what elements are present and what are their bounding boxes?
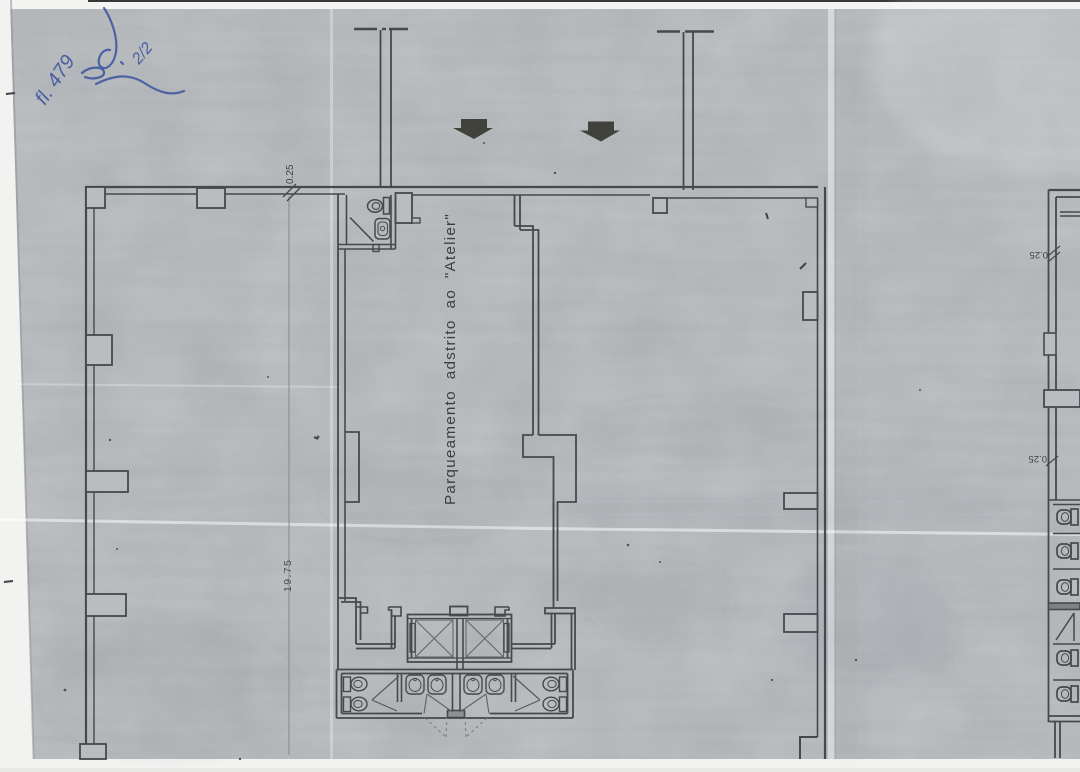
svg-text:0.25: 0.25 <box>1029 453 1048 464</box>
svg-text:0.25: 0.25 <box>1030 249 1049 260</box>
svg-text:0.25: 0.25 <box>285 164 296 184</box>
svg-text:19.75: 19.75 <box>282 559 294 592</box>
svg-text:Parqueamento adstrito ao "A: Parqueamento adstrito ao "Atelier" <box>442 213 459 505</box>
